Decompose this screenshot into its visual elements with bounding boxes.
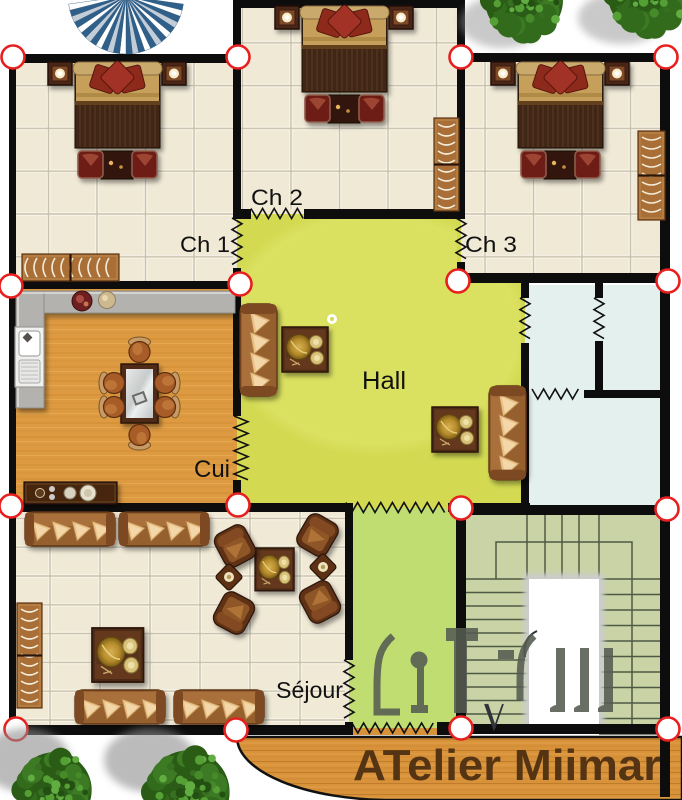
svg-text:Cui: Cui — [194, 456, 230, 483]
svg-text:Séjour: Séjour — [276, 677, 343, 703]
svg-text:Ch 2: Ch 2 — [251, 185, 303, 210]
svg-text:Ch 3: Ch 3 — [465, 232, 517, 257]
svg-text:Hall: Hall — [362, 367, 406, 395]
svg-text:Ch 1: Ch 1 — [180, 232, 230, 257]
svg-text:ATelier Miimar: ATelier Miimar — [353, 741, 661, 790]
